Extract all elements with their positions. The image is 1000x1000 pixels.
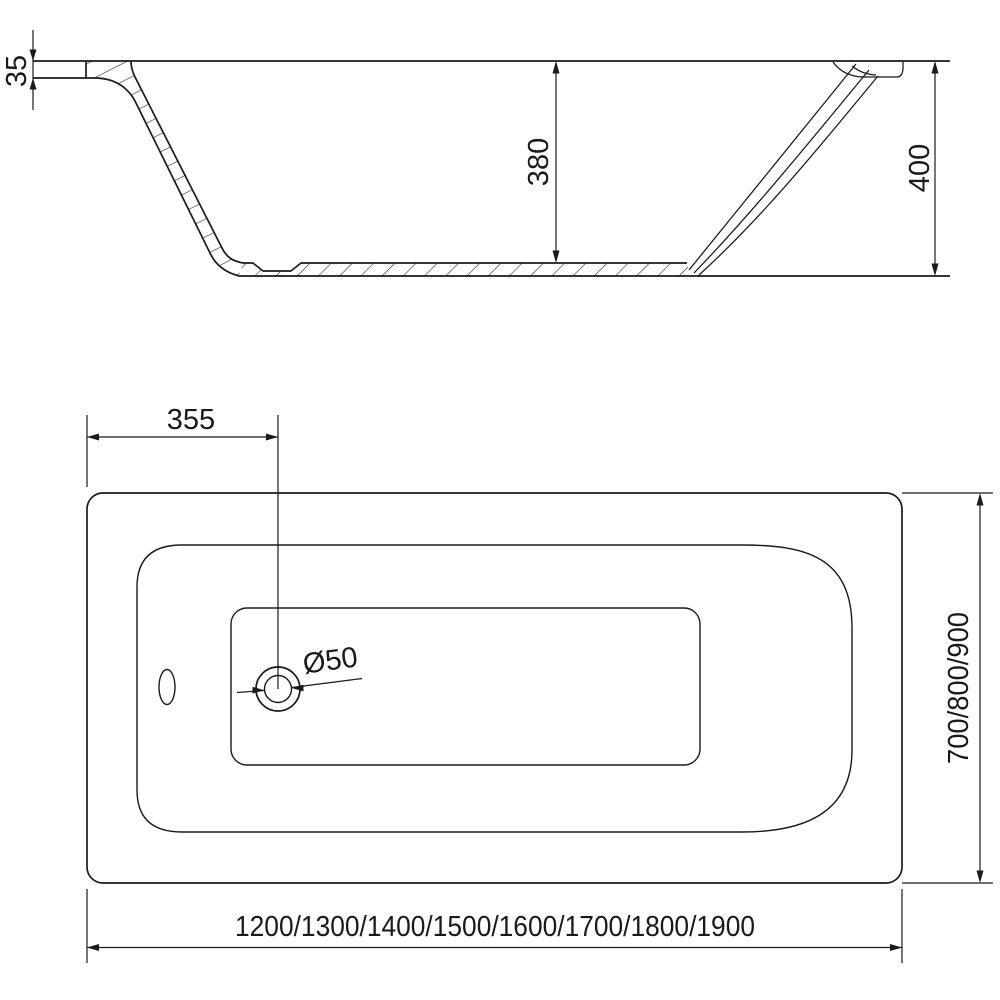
arrow-up-icon	[553, 61, 560, 74]
dim-length-options: 1200/1300/1400/1500/1600/1700/1800/1900	[87, 889, 902, 963]
dim-overall-height: 400	[904, 61, 939, 276]
dim-380-label: 380	[523, 138, 555, 186]
rim-scroll-right	[833, 62, 903, 77]
arrow-down-icon	[932, 264, 939, 277]
dim-drain-offset: 355	[87, 404, 278, 487]
arrow-left-icon	[87, 434, 99, 441]
left-wall-inner-line	[131, 61, 243, 263]
arrow-right-icon	[890, 944, 902, 951]
width-options-label: 700/800/900	[943, 612, 975, 764]
arrow-up-icon	[932, 61, 939, 74]
length-options-label: 1200/1300/1400/1500/1600/1700/1800/1900	[235, 911, 755, 943]
floor-hatch	[239, 263, 692, 276]
dim-35-label: 35	[1, 55, 33, 87]
dim-400-label: 400	[904, 144, 936, 192]
drain-diameter-label: Ø50	[301, 641, 360, 680]
arrow-down-icon	[553, 251, 560, 264]
side-view: 35 380 400	[1, 30, 950, 276]
bathtub-drawing-canvas: 35 380 400	[0, 0, 1000, 1000]
arrow-right-icon	[253, 687, 265, 694]
arrow-left-icon	[87, 944, 99, 951]
arrow-left-icon	[292, 685, 304, 692]
arrow-up-icon	[977, 493, 984, 506]
technical-drawing: 35 380 400	[0, 0, 1000, 1000]
arrow-right-icon	[266, 434, 278, 441]
dim-inner-depth: 380	[523, 61, 560, 263]
tub-outer-outline	[87, 493, 902, 883]
right-wall-profile	[689, 61, 903, 275]
tub-rim-inner-outline	[137, 545, 852, 832]
plan-view: 355 Ø50 700/800/900 1200/1300/1400/1	[87, 404, 993, 963]
dim-rim-thickness: 35	[1, 30, 37, 110]
arrow-down-icon	[977, 871, 984, 884]
overflow-symbol	[159, 670, 175, 705]
dim-355-label: 355	[167, 404, 215, 436]
dim-width-options: 700/800/900	[902, 493, 993, 883]
